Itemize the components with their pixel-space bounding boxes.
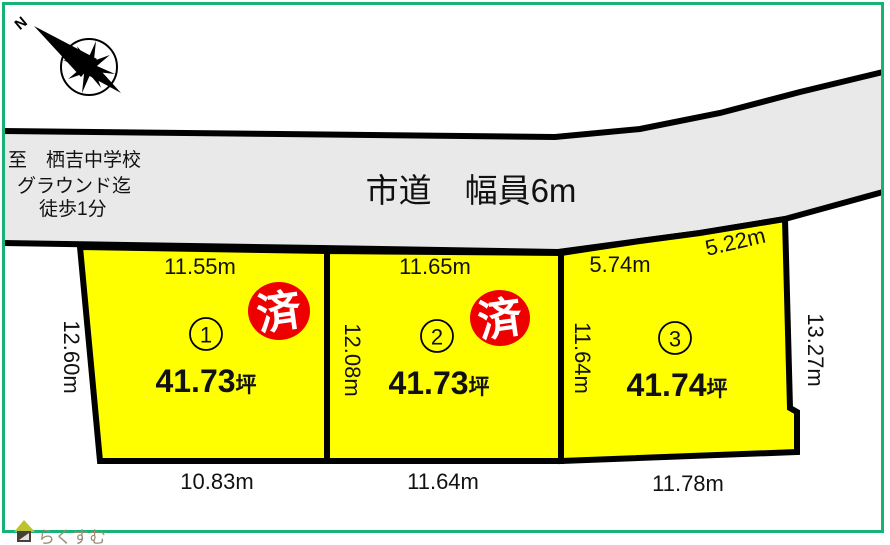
plot-1-top-dimension: 11.55m	[164, 254, 236, 279]
plot-3-area-value: 41.74	[626, 367, 706, 403]
plot-2-left-dimension: 12.08m	[340, 323, 365, 396]
access-note-line1: 至 栖吉中学校	[8, 149, 141, 171]
plot-3-top-dimension: 5.74m	[589, 252, 650, 277]
plot-1-number: 1	[200, 323, 212, 348]
plot-1-sold-label: 済	[254, 286, 305, 341]
plot-1-shape	[80, 247, 327, 461]
plot-2-top-dimension: 11.65m	[399, 254, 471, 279]
plot-2-area-unit: 坪	[469, 376, 490, 399]
plot-1-area-unit: 坪	[236, 374, 257, 397]
plot-1-bottom-dimension: 10.83m	[180, 469, 253, 494]
road-label: 市道 幅員6m	[366, 172, 577, 209]
plot-2-number: 2	[431, 325, 443, 350]
access-note-line2: グラウンド迄	[17, 175, 131, 197]
land-plot-diagram: N 至 栖吉中学校 グラウンド迄 徒歩1分 市道 幅員6m 11.55m 11.…	[0, 0, 890, 545]
plot-2-area-value: 41.73	[388, 365, 468, 401]
brand-watermark-label: らくすむ	[38, 528, 106, 545]
plot-1-sold-badge: 済	[248, 282, 310, 340]
plot-3-number: 3	[669, 327, 681, 352]
plot-3-bottom-dimension: 11.78m	[652, 471, 724, 496]
plot-1-left-dimension: 12.60m	[59, 320, 84, 393]
plot-2-bottom-dimension: 11.64m	[407, 469, 479, 494]
plot-2-sold-label: 済	[475, 293, 526, 348]
plot-3-right-dimension: 13.27m	[803, 313, 828, 386]
plot-3-area-unit: 坪	[707, 378, 728, 401]
access-note-line3: 徒歩1分	[39, 198, 107, 220]
plot-3-left-dimension: 11.64m	[570, 322, 595, 394]
plot-1-area-value: 41.73	[155, 363, 235, 399]
